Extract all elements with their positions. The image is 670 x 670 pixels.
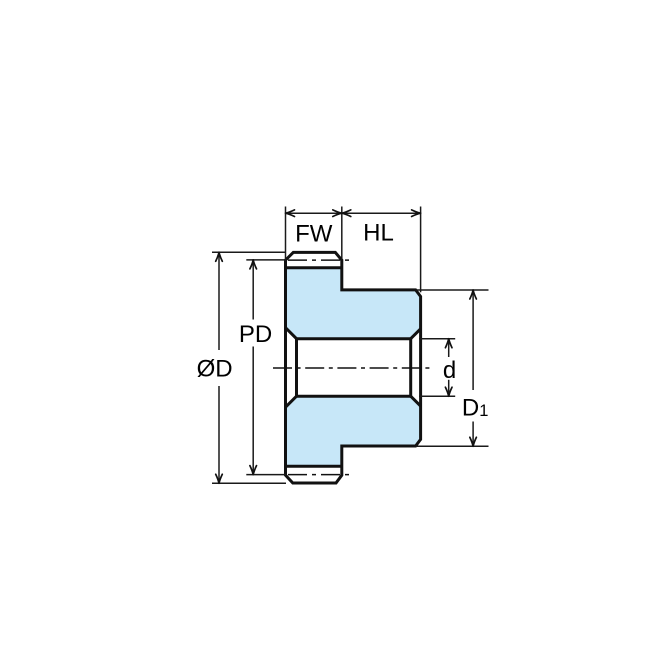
svg-text:ØD: ØD	[197, 355, 233, 382]
svg-text:d: d	[443, 357, 456, 384]
svg-text:PD: PD	[239, 321, 272, 348]
svg-text:D1: D1	[462, 395, 489, 422]
svg-text:HL: HL	[363, 219, 394, 246]
svg-text:FW: FW	[295, 221, 333, 248]
